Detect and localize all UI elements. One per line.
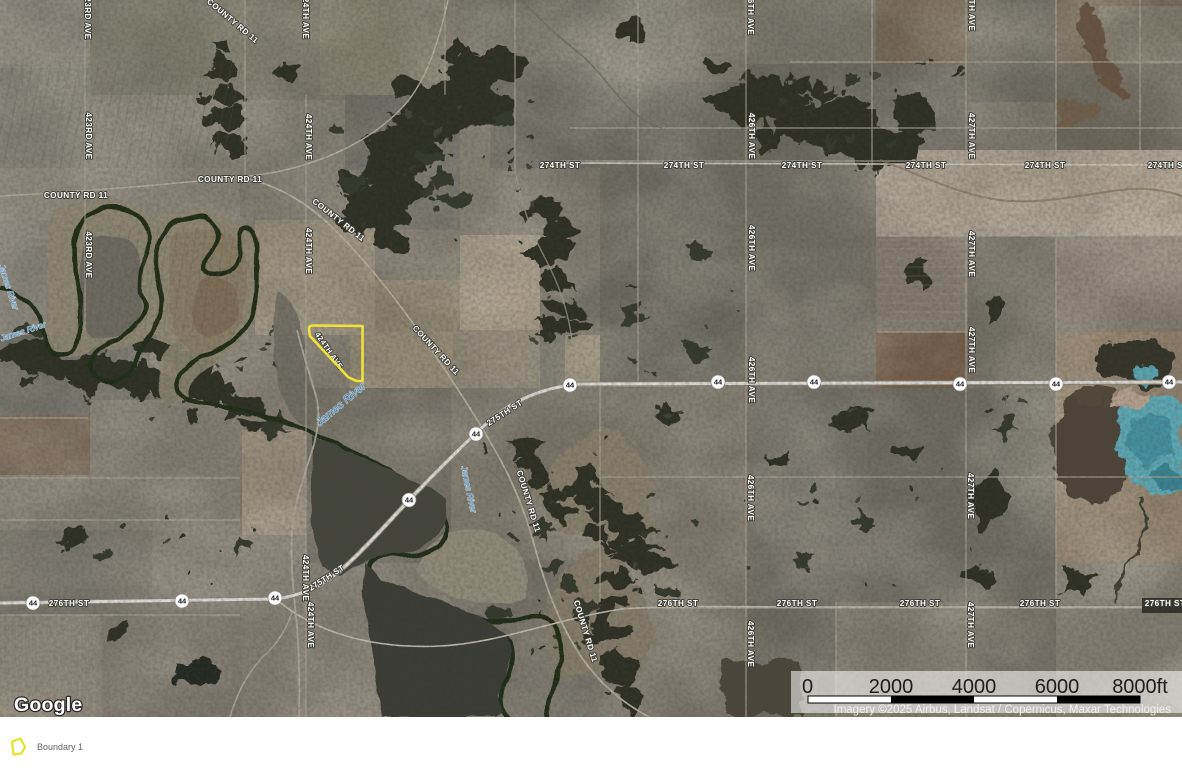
svg-text:424TH AVE: 424TH AVE (304, 228, 313, 275)
svg-text:423RD AVE: 423RD AVE (84, 231, 93, 278)
svg-text:423RD AVE: 423RD AVE (84, 112, 93, 159)
svg-text:424TH AVE: 424TH AVE (304, 114, 313, 161)
svg-text:2000: 2000 (869, 676, 914, 698)
svg-text:44: 44 (1165, 378, 1174, 387)
svg-text:COUNTY RD 11: COUNTY RD 11 (44, 191, 108, 200)
svg-text:44: 44 (472, 430, 481, 439)
svg-text:426TH AVE: 426TH AVE (746, 621, 755, 668)
svg-text:Imagery ©2025 Airbus, Landsat: Imagery ©2025 Airbus, Landsat / Copernic… (834, 704, 1172, 716)
svg-text:44: 44 (1052, 380, 1061, 389)
svg-text:274TH ST: 274TH ST (1025, 161, 1066, 170)
svg-text:427TH AVE: 427TH AVE (967, 0, 976, 31)
svg-text:276TH ST: 276TH ST (900, 599, 941, 608)
svg-text:274TH ST: 274TH ST (1148, 161, 1182, 170)
svg-text:274TH ST: 274TH ST (664, 161, 705, 170)
svg-text:44: 44 (566, 381, 575, 390)
svg-text:424TH AVE: 424TH AVE (301, 555, 310, 602)
svg-text:427TH AVE: 427TH AVE (966, 602, 975, 649)
svg-text:424TH AVE: 424TH AVE (301, 0, 310, 39)
svg-text:426TH AVE: 426TH AVE (747, 113, 756, 160)
svg-text:424TH AVE: 424TH AVE (306, 602, 315, 649)
svg-text:44: 44 (714, 378, 723, 387)
svg-text:6000: 6000 (1035, 676, 1080, 698)
svg-text:44: 44 (956, 380, 965, 389)
svg-text:44: 44 (405, 496, 414, 505)
svg-text:44: 44 (810, 378, 819, 387)
svg-text:426TH AVE: 426TH AVE (747, 357, 756, 404)
svg-text:Google: Google (14, 694, 82, 716)
svg-text:426TH AVE: 426TH AVE (746, 475, 755, 522)
svg-text:427TH AVE: 427TH AVE (967, 327, 976, 374)
svg-text:276TH ST: 276TH ST (1020, 599, 1061, 608)
svg-text:276TH ST: 276TH ST (658, 599, 699, 608)
svg-text:8000ft: 8000ft (1112, 676, 1168, 698)
svg-text:427TH AVE: 427TH AVE (967, 113, 976, 160)
svg-text:Boundary 1: Boundary 1 (37, 742, 83, 752)
svg-text:44: 44 (271, 594, 280, 603)
svg-text:423RD AVE: 423RD AVE (83, 0, 92, 40)
svg-text:COUNTY RD 11: COUNTY RD 11 (198, 175, 262, 184)
svg-text:427TH AVE: 427TH AVE (966, 473, 975, 520)
svg-text:276TH ST: 276TH ST (777, 599, 818, 608)
svg-text:427TH AVE: 427TH AVE (967, 231, 976, 278)
svg-text:276TH ST: 276TH ST (49, 599, 90, 608)
svg-text:44: 44 (178, 597, 187, 606)
svg-text:276TH ST: 276TH ST (1145, 599, 1182, 608)
svg-text:0: 0 (802, 676, 813, 698)
svg-text:426TH AVE: 426TH AVE (747, 225, 756, 272)
svg-text:4000: 4000 (952, 676, 997, 698)
svg-text:426TH AVE: 426TH AVE (746, 0, 755, 35)
svg-text:274TH ST: 274TH ST (782, 161, 823, 170)
svg-text:274TH ST: 274TH ST (540, 161, 581, 170)
svg-text:274TH ST: 274TH ST (906, 161, 947, 170)
svg-text:44: 44 (29, 599, 38, 608)
